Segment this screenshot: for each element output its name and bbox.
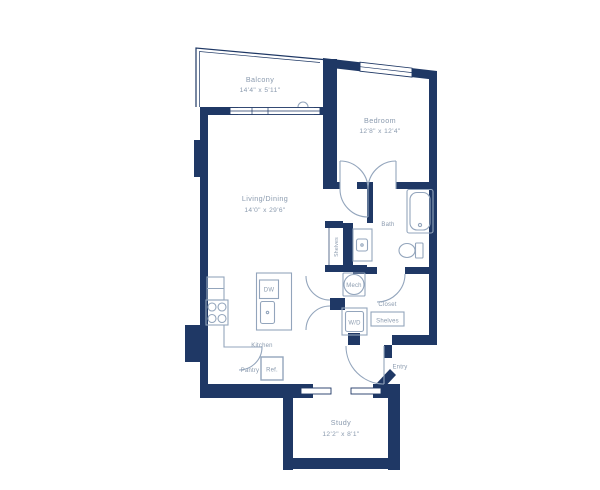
room-label-balcony: Balcony — [246, 75, 274, 84]
label-mech: Mech — [346, 283, 361, 289]
label-ref: Ref. — [266, 368, 278, 374]
study-door-bar-right — [351, 388, 381, 394]
room-label-living: Living/Dining — [242, 194, 288, 203]
room-label-entry: Entry — [392, 365, 407, 371]
bath-door-icon — [340, 189, 368, 217]
room-label-bath: Bath — [381, 222, 394, 228]
entry-door-icon — [346, 346, 384, 384]
label-closet-shelves: Shelves — [376, 319, 399, 325]
stove-icon — [206, 277, 228, 325]
closet-door-icon — [377, 274, 405, 302]
fixtures — [206, 190, 433, 381]
room-label-study: Study — [331, 418, 351, 427]
living-window — [230, 108, 320, 115]
bedroom-window — [360, 62, 412, 77]
room-dims-study: 12'2" x 8'1" — [322, 431, 360, 438]
room-label-bedroom: Bedroom — [364, 116, 396, 125]
room-dims-living: 14'0" x 29'6" — [244, 207, 286, 214]
bedroom-double-door-icon — [340, 161, 396, 189]
pantry-door-icon — [239, 347, 262, 370]
label-pantry: Pantry — [241, 368, 260, 374]
kitchen-counter-edge — [224, 325, 239, 347]
balcony-door-icon — [298, 102, 308, 107]
floor-plan: Balcony 14'4" x 5'11" Bedroom 12'8" x 12… — [0, 0, 600, 490]
bath-vanity-icon — [353, 229, 372, 261]
study-door-bar-left — [301, 388, 331, 394]
room-label-kitchen: Kitchen — [251, 343, 272, 349]
walls — [185, 58, 437, 470]
label-linen-shelves: Shelves — [334, 237, 340, 257]
room-dims-balcony: 14'4" x 5'11" — [240, 87, 281, 94]
room-label-closet: Closet — [378, 302, 396, 308]
toilet-icon — [399, 243, 423, 258]
room-dims-bedroom: 12'8" x 12'4" — [359, 128, 401, 135]
label-dw: DW — [264, 288, 275, 294]
laundry-doors-icon — [306, 276, 330, 330]
doors — [239, 102, 405, 384]
floor-plan-page: Balcony 14'4" x 5'11" Bedroom 12'8" x 12… — [0, 0, 600, 490]
kitchen-island-icon — [257, 273, 292, 330]
label-wd: W/D — [348, 321, 361, 327]
